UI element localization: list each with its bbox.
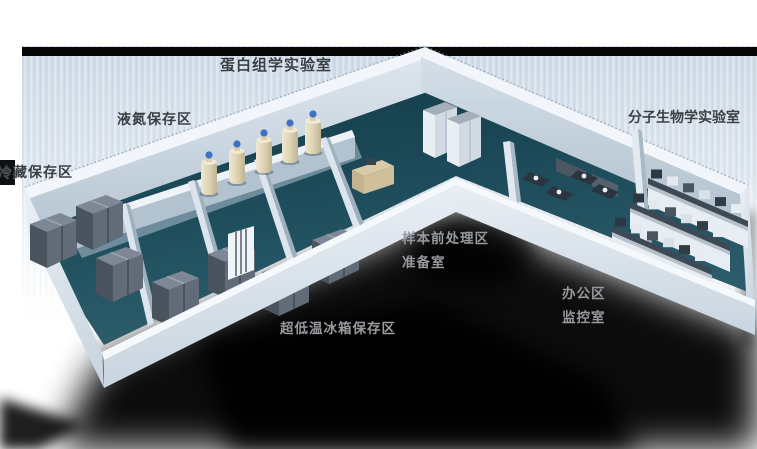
lab-floorplan-scene: 蛋白组学实验室 液氮保存区 冷藏保存区 分子生物学实验室 样本前处理区 准备室 … — [0, 0, 757, 449]
building-3d-render — [0, 0, 757, 449]
dark-corner-patch — [0, 160, 15, 185]
top-black-bar — [22, 47, 757, 56]
